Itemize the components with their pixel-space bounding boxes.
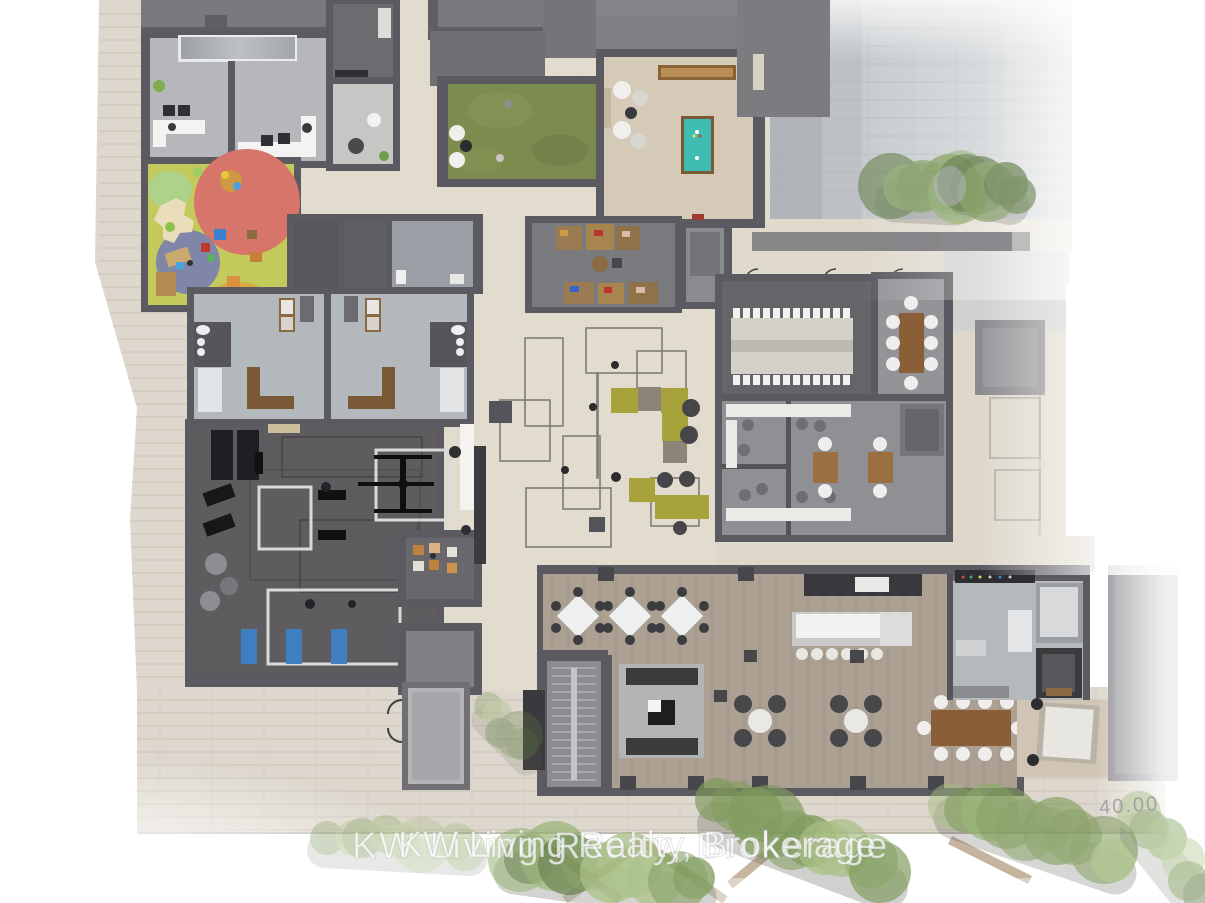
svg-text:40.00: 40.00 bbox=[1098, 793, 1159, 819]
svg-text:KW Living Realty, Brokerage: KW Living Realty, Brokerage bbox=[398, 824, 876, 865]
